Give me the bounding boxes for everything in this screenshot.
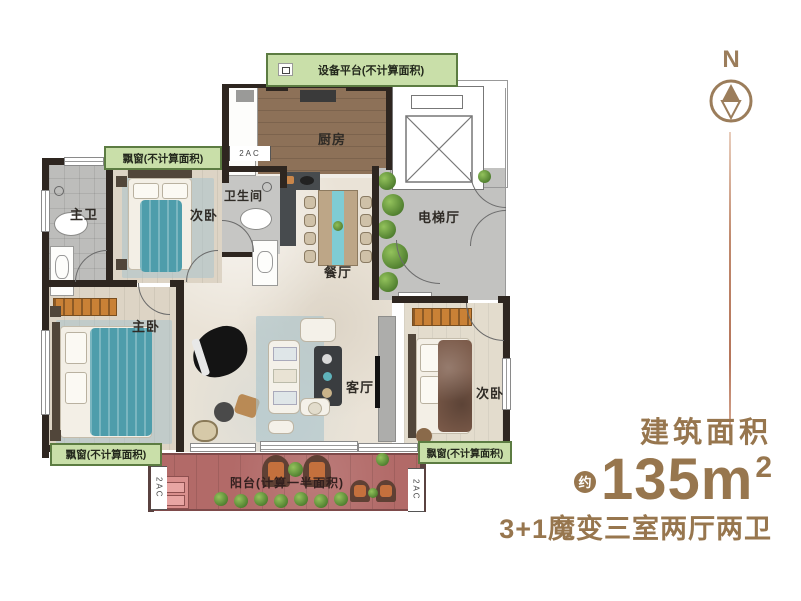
wall-segment	[372, 166, 379, 300]
approx-badge: 约	[574, 471, 596, 493]
room-label-elevator-hall: 电梯厅	[418, 207, 460, 226]
plant	[274, 494, 288, 508]
dining-chair	[304, 250, 316, 263]
area-value: 135m	[601, 452, 753, 507]
room-label-kitchen: 厨房	[318, 129, 346, 148]
compass-icon	[708, 78, 754, 124]
bay-window-band-top: 飘窗(不计算面积)	[104, 146, 222, 170]
bay-window-band-bottom-left: 飘窗(不计算面积)	[50, 443, 162, 466]
dining-chair	[360, 250, 372, 263]
divider-line	[729, 132, 731, 436]
window	[41, 330, 50, 415]
plant	[314, 494, 328, 508]
wall-segment	[386, 84, 392, 170]
wall-segment	[280, 166, 287, 188]
floorplan-canvas: 设备平台(不计算面积) 飘窗(不计算面积) 飘窗(不计算面积) 飘窗(不计算面积…	[0, 0, 801, 601]
plant	[214, 492, 228, 506]
wall-segment	[222, 166, 284, 172]
plant	[376, 453, 389, 466]
wardrobe	[412, 308, 472, 326]
bay-window-label: 飘窗(不计算面积)	[66, 447, 147, 462]
room-label-living: 客厅	[346, 377, 374, 396]
wall-segment	[106, 163, 113, 285]
bay-window-label: 飘窗(不计算面积)	[123, 151, 204, 166]
area-title: 建筑面积	[430, 418, 772, 450]
room-label-bedroom-right: 次卧	[476, 383, 504, 402]
plant	[382, 194, 404, 216]
room-label-bathroom: 卫生间	[224, 187, 263, 204]
stool	[192, 420, 218, 442]
room-label-master-bath: 主卫	[70, 204, 98, 223]
area-value-row: 约 135m 2	[430, 452, 772, 507]
north-letter: N	[714, 46, 748, 74]
tv-icon	[375, 356, 380, 408]
plant	[378, 272, 398, 292]
bookshelf	[53, 298, 117, 316]
ottoman	[300, 398, 330, 416]
window	[64, 157, 104, 166]
platform-icon	[278, 63, 293, 76]
pillow	[420, 376, 440, 404]
room-label-dining: 餐厅	[324, 262, 352, 281]
nightstand	[50, 306, 61, 317]
pillow	[420, 344, 440, 372]
plant	[294, 492, 308, 506]
bed-headboard	[128, 170, 192, 178]
plant	[378, 172, 396, 190]
wall-segment	[176, 280, 184, 452]
equipment-platform-label: 设备平台(不计算面积)	[300, 62, 424, 78]
sliding-door	[358, 443, 418, 452]
dining-chair	[304, 196, 316, 209]
legend-panel: 建筑面积 约 135m 2 3+1魔变三室两厅两卫	[430, 418, 772, 546]
dining-chair	[304, 232, 316, 245]
plant	[334, 492, 348, 506]
wall-segment	[392, 296, 468, 303]
area-superscript: 2	[755, 451, 772, 485]
shower-icon	[262, 182, 272, 192]
ottoman	[268, 420, 294, 434]
stool	[214, 402, 234, 422]
nightstand	[116, 259, 127, 270]
armchair	[300, 318, 336, 342]
dining-table	[318, 190, 358, 266]
window	[41, 190, 50, 232]
plant	[377, 220, 396, 239]
dining-chair	[360, 214, 372, 227]
pillow	[65, 332, 87, 364]
pillow	[162, 183, 188, 199]
kitchen-sink-icon	[236, 90, 254, 102]
toilet	[240, 208, 272, 230]
bed-blanket	[140, 200, 182, 272]
elevator-x-icon	[405, 115, 473, 183]
range-hood-icon	[300, 90, 336, 102]
room-label-master-bedroom: 主卧	[132, 316, 160, 335]
sliding-door	[190, 443, 256, 452]
dining-chair	[360, 196, 372, 209]
hall-vanity	[252, 240, 278, 286]
sliding-door	[260, 441, 358, 452]
nightstand	[116, 176, 127, 187]
shower-icon	[54, 186, 64, 196]
dining-chair	[360, 232, 372, 245]
wall-segment	[222, 252, 252, 257]
bed-blanket	[90, 328, 152, 436]
bed-headboard	[408, 334, 416, 438]
tv-wall	[378, 316, 396, 442]
ac-marker: 2AC	[229, 146, 271, 161]
plant	[254, 492, 268, 506]
bed-headboard	[52, 322, 60, 440]
room-label-balcony: 阳台(计算一半面积)	[150, 474, 424, 491]
elevator-door-box	[411, 95, 463, 109]
bath-vanity	[50, 246, 74, 296]
coffee-table	[314, 346, 342, 406]
sofa	[268, 340, 300, 414]
plant	[234, 494, 248, 508]
equipment-platform-band: 设备平台(不计算面积)	[266, 53, 458, 87]
dining-chair	[304, 214, 316, 227]
tagline: 3+1魔变三室两厅两卫	[430, 507, 772, 546]
nightstand	[50, 430, 61, 441]
pillow	[133, 183, 159, 199]
room-label-bedroom-top: 次卧	[190, 205, 218, 224]
pillow	[65, 372, 87, 404]
bar-counter-side	[280, 190, 296, 246]
